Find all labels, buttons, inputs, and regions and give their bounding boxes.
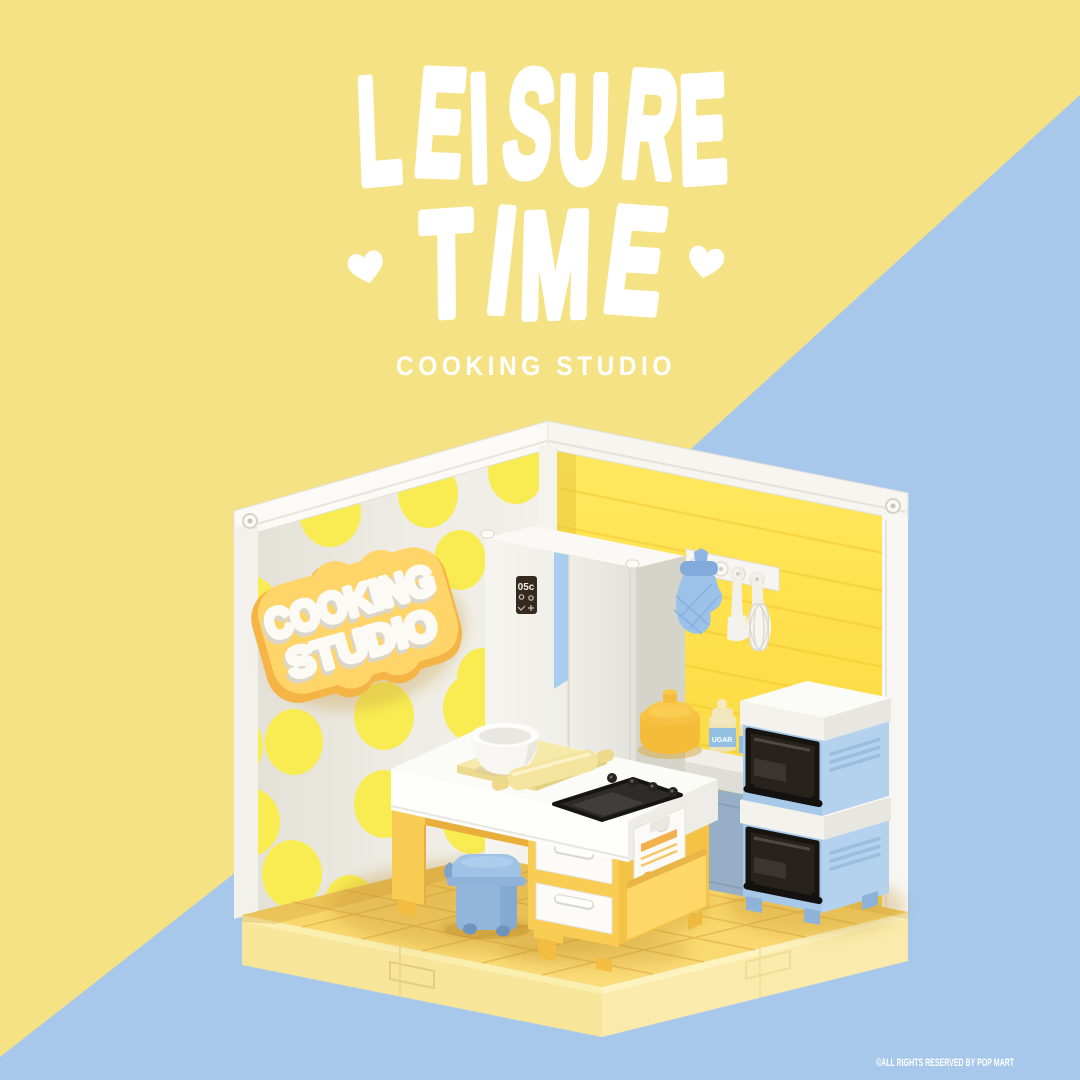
svg-text:COOKING STUDIO: COOKING STUDIO [396,351,676,381]
svg-text:L: L [354,44,404,216]
svg-text:E: E [677,43,728,215]
svg-text:M: M [518,181,593,349]
svg-text:UGAR: UGAR [712,737,733,744]
svg-text:©ALL RIGHTS RESERVED BY POP MA: ©ALL RIGHTS RESERVED BY POP MART [876,1057,1014,1069]
svg-text:05c: 05c [518,582,535,593]
svg-text:T: T [420,179,473,348]
